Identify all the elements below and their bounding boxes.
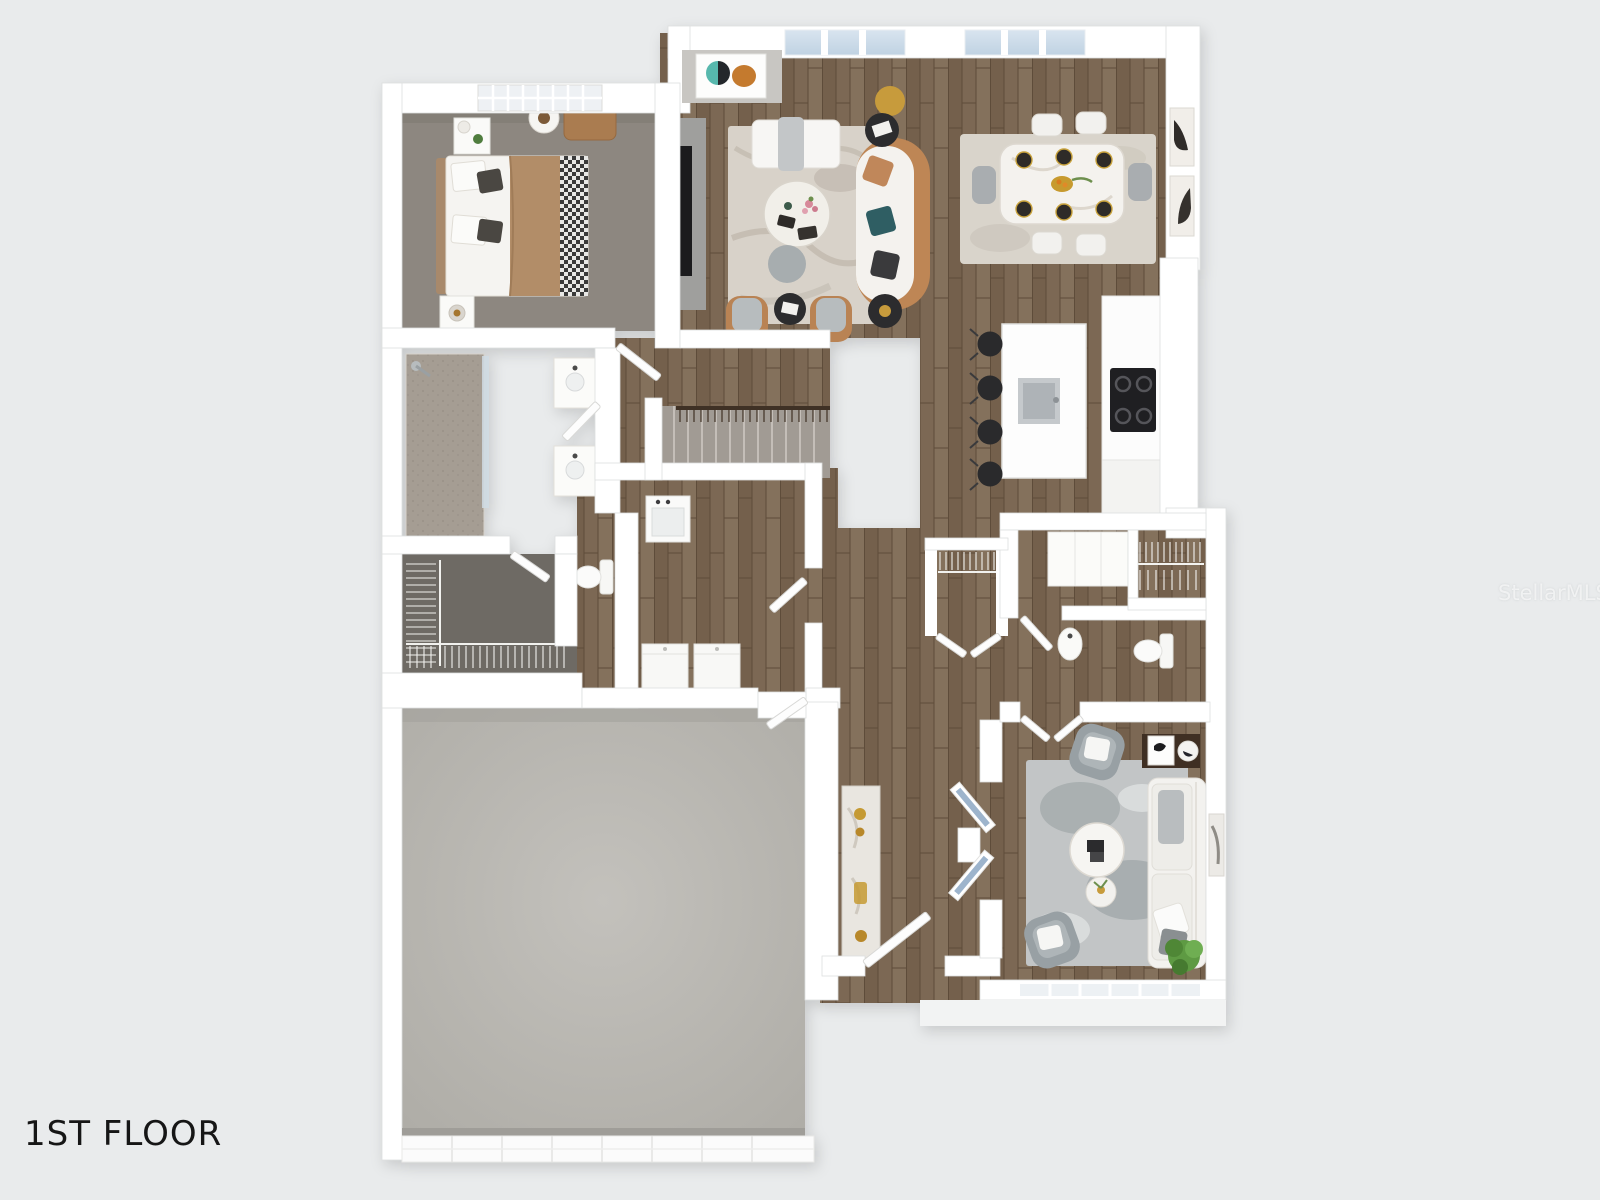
dining-chair: [1076, 112, 1106, 134]
fruit-bowl: [1051, 176, 1073, 192]
shower-glass: [482, 356, 489, 508]
faucet: [1053, 397, 1059, 403]
gray-blanket: [778, 117, 804, 171]
side-table: [1142, 734, 1200, 768]
black-side-table: [774, 293, 806, 325]
nightstand: [454, 118, 490, 154]
tv: [680, 146, 692, 276]
sitting-room-window-band: [1020, 984, 1200, 996]
dining-chair: [1128, 163, 1152, 201]
side-coffee-table: [1086, 877, 1116, 907]
kitchen-counter: [1102, 296, 1162, 516]
stellar-mls-watermark: StellarMLS: [1498, 581, 1600, 605]
lamp: [458, 121, 470, 133]
plant: [473, 134, 483, 144]
sink: [566, 461, 584, 479]
mudroom-cabinet: [1048, 532, 1128, 586]
garage-door: [402, 1128, 814, 1162]
floorplan-canvas: 1ST FLOOR StellarMLS: [0, 0, 1600, 1200]
black-side-table: [868, 294, 902, 328]
daybed-bench: [752, 117, 840, 171]
dining-chair: [1032, 114, 1062, 136]
pouf: [768, 245, 806, 283]
nightstand: [440, 296, 474, 330]
console-table: [842, 786, 880, 958]
dining-chair: [972, 166, 996, 204]
vanity: [554, 446, 596, 496]
pillow: [870, 250, 901, 281]
throw-blanket: [1158, 790, 1184, 844]
dining-table: [1000, 144, 1124, 224]
foyer: [842, 786, 880, 958]
front-porch: [920, 1000, 1226, 1026]
shower: [406, 354, 489, 556]
utility-sink: [646, 496, 690, 542]
sofa: [1148, 778, 1206, 968]
floor-plan-svg: [360, 8, 1240, 1173]
gold-side-table: [875, 86, 905, 116]
kitchen-island: [1002, 324, 1086, 478]
bedroom-window: [478, 85, 602, 111]
art-alcove: [682, 50, 782, 103]
coffee-table: [764, 181, 830, 247]
pedestal-sink: [1058, 628, 1082, 660]
sitting-wall-art: [1209, 814, 1224, 876]
bedroom: [402, 100, 655, 331]
coffee-table: [1070, 823, 1124, 877]
dining-chair: [1032, 232, 1062, 254]
bed: [436, 156, 588, 296]
dining-area: [960, 112, 1156, 264]
lamp: [1178, 741, 1198, 761]
sink: [566, 373, 584, 391]
floor-title: 1ST FLOOR: [24, 1114, 222, 1154]
tray: [454, 310, 461, 317]
black-side-table: [865, 113, 899, 147]
faucet: [573, 366, 578, 371]
closet-carpet: [402, 554, 577, 674]
accent-pillow: [477, 218, 504, 243]
garage: [402, 708, 805, 1136]
houndstooth-throw: [560, 156, 588, 296]
vanity: [554, 358, 596, 408]
dining-chair: [1076, 234, 1106, 256]
faucet: [573, 454, 578, 459]
blanket: [510, 156, 566, 296]
cooktop: [1110, 368, 1156, 432]
garage-floor: [402, 708, 805, 1136]
accent-pillow: [476, 168, 503, 194]
curved-sofa: [856, 138, 930, 310]
fridge: [1102, 460, 1162, 514]
walk-in-closet: [402, 554, 577, 674]
